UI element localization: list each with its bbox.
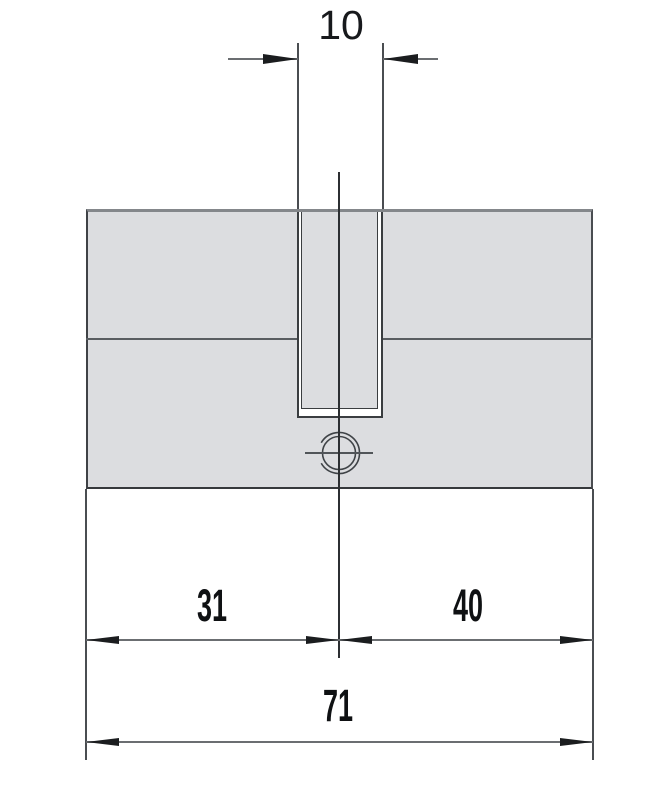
dimension-71-line [86,741,593,743]
extension-line-body-left [85,489,87,760]
dimension-71-arrow-left [86,738,119,746]
extension-line-body-right [592,489,594,760]
dimension-10-arrow-left [263,54,298,64]
dimension-31-arrow-left [86,636,119,644]
dimension-31-line [86,639,339,641]
dimension-71-label: 71 [305,682,371,729]
dimension-10-label: 10 [291,2,391,49]
dimension-40-arrow-left [339,636,372,644]
dimension-31-arrow-right [306,636,339,644]
extension-line-slot-left [297,43,299,209]
center-line [338,172,340,658]
cam-circle [300,414,380,494]
dimension-71-arrow-right [560,738,593,746]
dimension-10-arrow-right [383,54,418,64]
dimension-40-line [339,639,593,641]
technical-drawing-canvas: 10 31 40 71 [0,0,668,795]
extension-line-slot-right [382,43,384,209]
dimension-40-label: 40 [435,582,501,629]
dimension-31-label: 31 [179,582,245,629]
dimension-40-arrow-right [560,636,593,644]
